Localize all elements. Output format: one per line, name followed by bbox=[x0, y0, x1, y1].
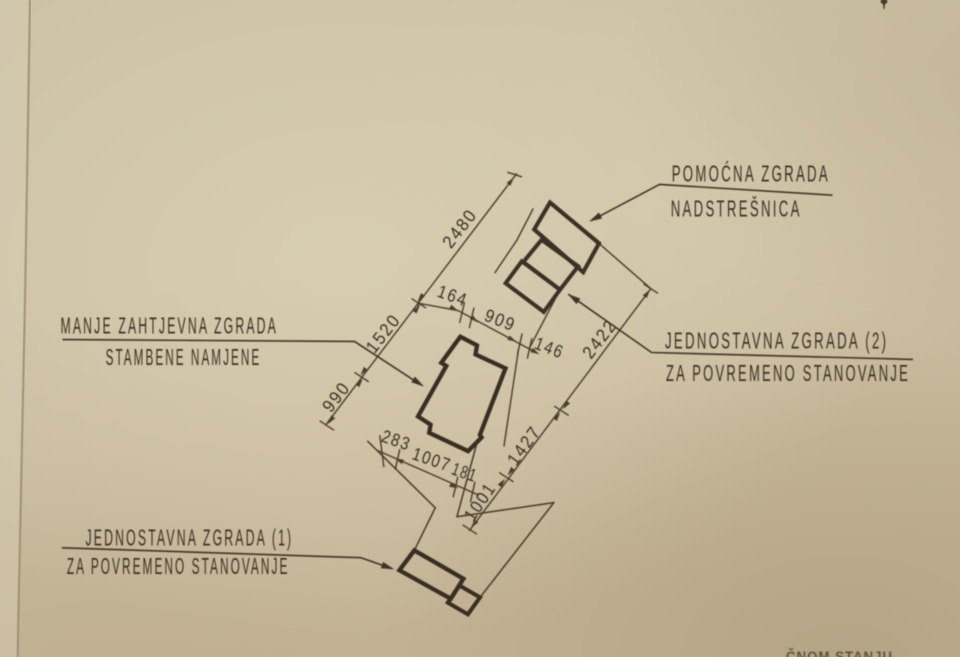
svg-text:ZA POVREMENO STANOVANJE: ZA POVREMENO STANOVANJE bbox=[666, 360, 910, 386]
svg-text:STAMBENE NAMJENE: STAMBENE NAMJENE bbox=[106, 344, 262, 370]
svg-text:JEDNOSTAVNA ZGRADA (1): JEDNOSTAVNA ZGRADA (1) bbox=[86, 524, 294, 550]
svg-text:POMOĆNA ZGRADA: POMOĆNA ZGRADA bbox=[672, 161, 830, 187]
svg-text:NADSTREŠNICA: NADSTREŠNICA bbox=[671, 194, 802, 221]
svg-text:MANJE ZAHTJEVNA ZGRADA: MANJE ZAHTJEVNA ZGRADA bbox=[61, 313, 279, 339]
svg-text:ZA POVREMENO STANOVANJE: ZA POVREMENO STANOVANJE bbox=[67, 553, 290, 579]
svg-text:JEDNOSTAVNA ZGRADA (2): JEDNOSTAVNA ZGRADA (2) bbox=[665, 327, 888, 353]
svg-text:ČNOM STANJU: ČNOM STANJU bbox=[786, 648, 893, 657]
